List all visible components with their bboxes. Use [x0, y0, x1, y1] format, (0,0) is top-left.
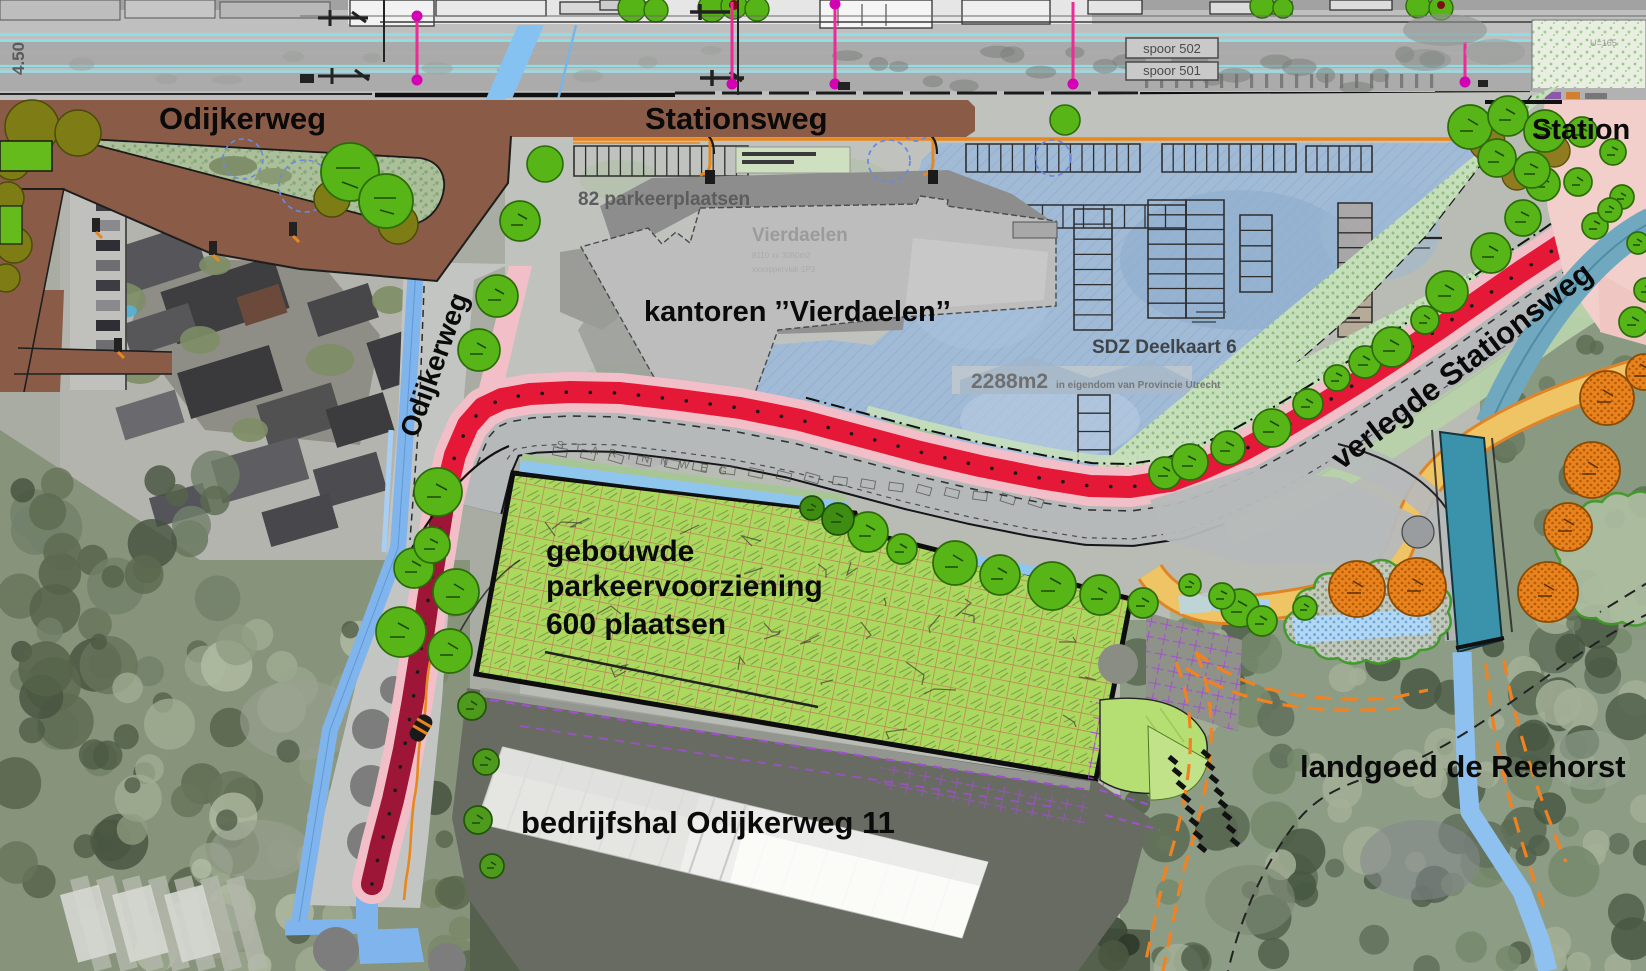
- svg-text:82 parkeerplaatsen: 82 parkeerplaatsen: [578, 189, 750, 210]
- svg-text:xxxoppervlak 1P3: xxxoppervlak 1P3: [752, 265, 816, 274]
- svg-text:Stationsweg: Stationsweg: [645, 101, 828, 136]
- svg-text:kantoren ’’Vierdaelen’’: kantoren ’’Vierdaelen’’: [644, 296, 951, 328]
- svg-text:landgoed de Reehorst: landgoed de Reehorst: [1300, 749, 1626, 784]
- svg-text:8110 xx 3060m2: 8110 xx 3060m2: [752, 251, 811, 260]
- svg-text:Vierdaelen: Vierdaelen: [752, 225, 848, 246]
- svg-text:SDZ Deelkaart 6: SDZ Deelkaart 6: [1092, 337, 1237, 358]
- svg-text:Odijkerweg: Odijkerweg: [159, 101, 326, 136]
- svg-text:parkeervoorziening: parkeervoorziening: [546, 570, 823, 603]
- svg-text:in eigendom van Provincie Utre: in eigendom van Provincie Utrecht: [1056, 380, 1221, 391]
- svg-text:spoor 502: spoor 502: [1143, 41, 1201, 56]
- svg-text:bedrijfshal Odijkerweg 11: bedrijfshal Odijkerweg 11: [521, 805, 895, 840]
- svg-text:2288m2: 2288m2: [971, 370, 1048, 393]
- svg-text:U=165: U=165: [1590, 38, 1617, 48]
- svg-text:spoor 501: spoor 501: [1143, 63, 1201, 78]
- svg-text:gebouwde: gebouwde: [546, 535, 694, 568]
- svg-text:4.50: 4.50: [9, 42, 28, 75]
- svg-text:Station: Station: [1532, 114, 1630, 146]
- svg-text:600 plaatsen: 600 plaatsen: [546, 608, 726, 641]
